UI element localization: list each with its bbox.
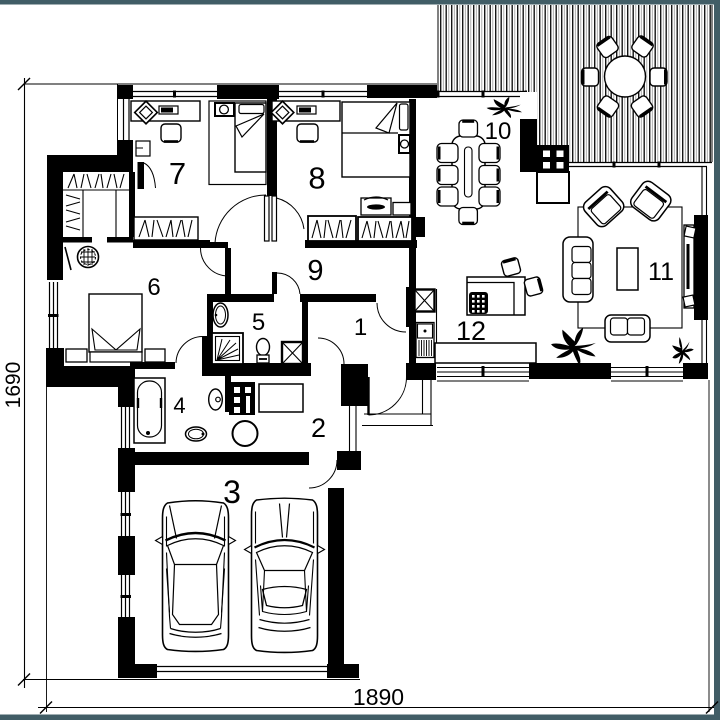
svg-text:1: 1 (354, 314, 367, 341)
svg-text:2: 2 (311, 413, 326, 443)
svg-text:6: 6 (147, 274, 160, 301)
svg-text:3: 3 (223, 474, 241, 510)
svg-text:7: 7 (169, 156, 186, 191)
svg-text:1890: 1890 (353, 684, 404, 710)
svg-text:5: 5 (252, 309, 265, 336)
svg-text:8: 8 (308, 161, 325, 196)
svg-text:1690: 1690 (2, 362, 25, 409)
svg-text:4: 4 (173, 393, 185, 418)
svg-text:9: 9 (307, 255, 323, 287)
svg-text:10: 10 (485, 118, 512, 145)
svg-text:12: 12 (456, 316, 486, 346)
svg-text:11: 11 (648, 258, 674, 286)
